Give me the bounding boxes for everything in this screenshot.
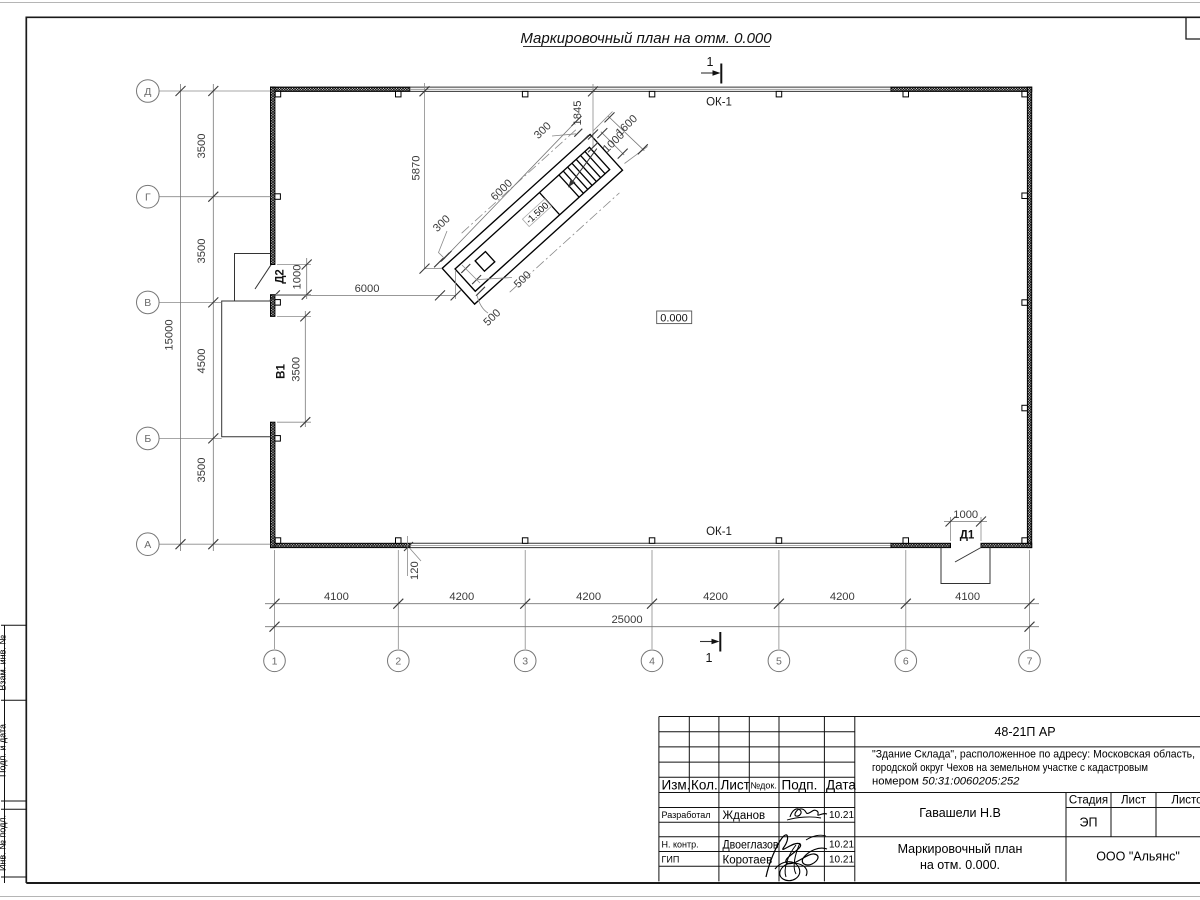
svg-text:4200: 4200 [449,591,474,603]
svg-text:Изм.: Изм. [662,777,691,792]
svg-text:1000: 1000 [953,509,978,521]
svg-text:4200: 4200 [576,591,601,603]
svg-text:Д1: Д1 [960,530,975,542]
svg-text:Маркировочный план на отм. 0.0: Маркировочный план на отм. 0.000 [520,30,772,47]
svg-text:5870: 5870 [411,156,423,181]
svg-text:Б: Б [144,433,151,445]
svg-text:4500: 4500 [196,349,208,374]
svg-text:Двоеглазов: Двоеглазов [723,840,779,852]
svg-text:"Здание Склада", расположенное: "Здание Склада", расположенное по адресу… [872,748,1195,760]
svg-text:1: 1 [706,651,713,665]
svg-text:3500: 3500 [196,134,208,159]
svg-text:ЭП: ЭП [1080,816,1098,830]
svg-text:10.21: 10.21 [829,810,854,821]
svg-text:48-21П АР: 48-21П АР [994,725,1055,739]
svg-text:1: 1 [707,55,714,69]
svg-text:Лист: Лист [1121,795,1147,807]
svg-text:1845: 1845 [572,101,584,126]
svg-text:1000: 1000 [292,265,304,290]
svg-text:ООО "Альянс": ООО "Альянс" [1096,850,1180,864]
svg-text:Д: Д [144,86,151,98]
svg-text:6: 6 [903,656,909,668]
svg-text:номером 50:31:0060205:252: номером 50:31:0060205:252 [872,776,1020,788]
svg-text:Лист: Лист [721,777,750,792]
svg-text:Разработал: Разработал [662,810,711,820]
svg-text:120: 120 [409,561,421,580]
svg-text:6000: 6000 [355,283,380,295]
svg-text:городской округ Чехов на земел: городской округ Чехов на земельном участ… [872,762,1148,774]
svg-text:Гавашели Н.В: Гавашели Н.В [919,806,1001,820]
svg-text:Подп. и дата: Подп. и дата [0,724,8,777]
svg-text:Коротаев: Коротаев [723,855,773,867]
svg-text:7: 7 [1027,656,1033,668]
svg-text:Стадия: Стадия [1069,795,1108,807]
svg-text:Взам. инв. №: Взам. инв. № [0,635,8,691]
svg-text:4200: 4200 [703,591,728,603]
svg-text:1: 1 [272,656,278,668]
svg-text:4: 4 [649,656,655,668]
svg-text:на отм. 0.000.: на отм. 0.000. [920,858,1000,872]
svg-text:В: В [144,297,151,309]
svg-text:Подп.: Подп. [782,777,818,792]
svg-text:2: 2 [395,656,401,668]
svg-text:15000: 15000 [164,319,176,350]
svg-text:Дата: Дата [826,777,856,792]
svg-text:3: 3 [522,656,528,668]
svg-text:Жданов: Жданов [723,810,766,822]
svg-text:А: А [144,539,151,551]
svg-text:Листов: Листов [1171,795,1200,807]
svg-text:В1: В1 [276,364,288,379]
svg-text:Д2: Д2 [275,269,287,284]
svg-text:3500: 3500 [196,239,208,264]
svg-text:25000: 25000 [611,614,642,626]
svg-text:4100: 4100 [324,591,349,603]
svg-text:Инв. № подл.: Инв. № подл. [0,815,8,871]
svg-text:Маркировочный план: Маркировочный план [898,842,1023,856]
svg-text:4200: 4200 [830,591,855,603]
svg-text:Н. контр.: Н. контр. [662,840,699,850]
svg-text:5: 5 [776,656,782,668]
svg-text:3500: 3500 [196,458,208,483]
svg-text:Кол.: Кол. [691,777,718,792]
svg-text:Г: Г [145,192,151,204]
svg-text:3500: 3500 [290,357,302,382]
svg-text:ОК-1: ОК-1 [706,526,732,538]
svg-text:№док.: №док. [751,781,777,791]
svg-text:0.000: 0.000 [660,312,688,324]
svg-text:ГИП: ГИП [662,855,680,865]
svg-text:10.21: 10.21 [829,855,854,866]
svg-text:4100: 4100 [955,591,980,603]
svg-text:ОК-1: ОК-1 [706,97,732,109]
svg-text:10.21: 10.21 [829,840,854,851]
